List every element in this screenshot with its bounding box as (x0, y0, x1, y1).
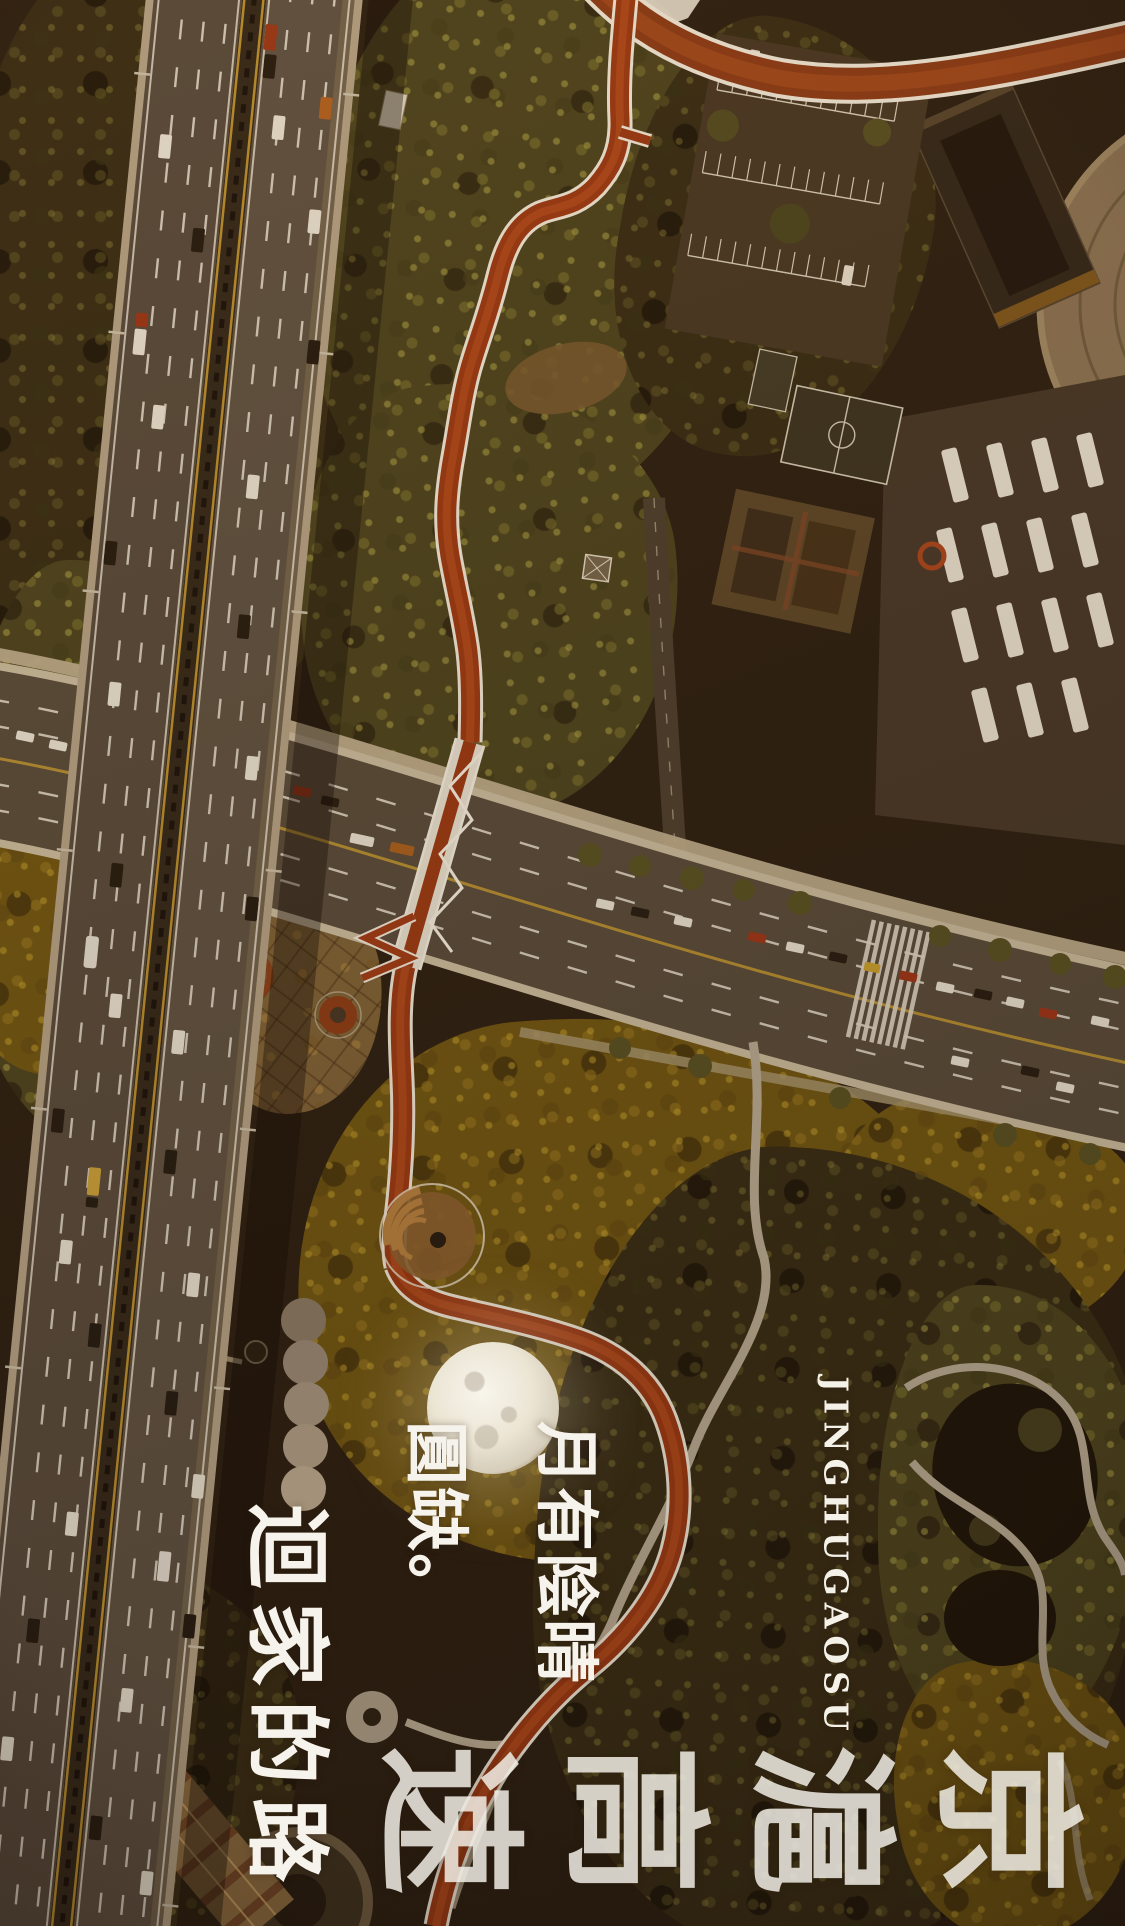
poster-canvas: 月有陰晴 圓缺。 迴家的路 JINGHUGAOSU 速高滬京 (0, 0, 1125, 1926)
tagline: 迴家的路 (233, 1504, 354, 1896)
poem-line-1: 月有陰晴 (500, 1421, 630, 1685)
circular-plaza (346, 1691, 398, 1743)
pagoda-pavilion (582, 554, 611, 581)
latin-subtitle: JINGHUGAOSU (817, 1376, 856, 1738)
poem-quote: 月有陰晴 圓缺。 (370, 1421, 630, 1685)
spiral-terrace (380, 1184, 484, 1288)
main-title-char: 滬 (753, 1745, 913, 1895)
main-title-char: 京 (939, 1745, 1099, 1895)
moon-phase-dot (281, 1298, 326, 1343)
elevated-expressway (0, 0, 428, 1926)
main-title-char: 高 (567, 1745, 727, 1895)
main-title-char: 速 (381, 1745, 541, 1895)
poem-line-2: 圓缺。 (370, 1421, 500, 1685)
moon-phase-dot (283, 1424, 328, 1469)
dirt-pond (498, 330, 635, 426)
main-title: 速高滬京 (386, 1740, 1094, 1900)
moon-phase-dot (284, 1382, 329, 1427)
bus-depot (875, 375, 1125, 845)
courtyard-building (711, 489, 874, 634)
basketball-court (738, 349, 909, 484)
pond (912, 1365, 1118, 1666)
moon-phase-dot (283, 1340, 328, 1385)
